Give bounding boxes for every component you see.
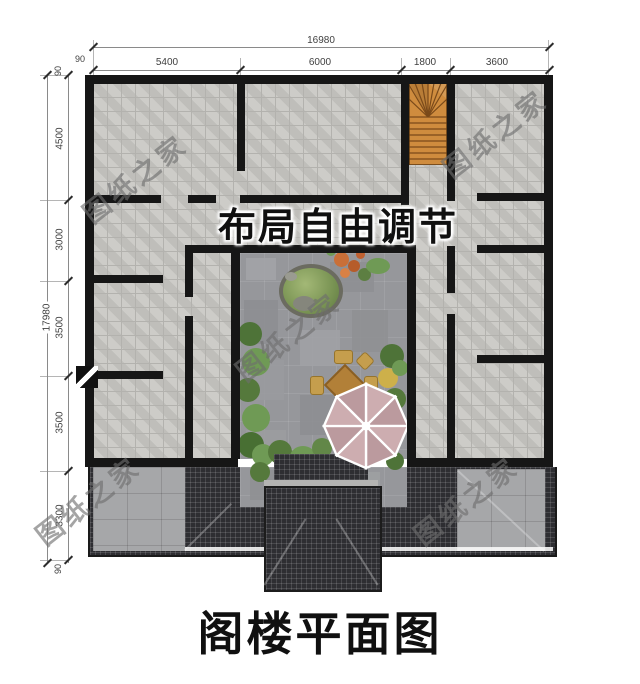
- shrub: [392, 360, 408, 376]
- wall-partition: [188, 195, 216, 203]
- extension-line: [40, 281, 68, 282]
- paving-patch: [246, 258, 276, 280]
- patio-seat: [334, 350, 353, 364]
- wall-partition: [477, 245, 545, 253]
- flower-plant: [334, 252, 349, 267]
- dimension-line-top-segments: [93, 70, 549, 71]
- dim-top-segment: 5400: [142, 57, 192, 68]
- wall-fixture-marker: [76, 366, 98, 388]
- wall-partition: [93, 275, 163, 283]
- dim-left-segment: 3500: [55, 306, 66, 350]
- wall-exterior-left: [85, 75, 94, 467]
- shrub: [366, 258, 390, 274]
- dim-left-segment: 3000: [55, 218, 66, 262]
- wall-partition: [185, 316, 193, 459]
- dim-left-segment: 4500: [55, 117, 66, 161]
- dimension-tick: [545, 42, 554, 51]
- dimension-tick: [64, 555, 73, 564]
- extension-line: [40, 200, 68, 201]
- page-title: 阁楼平面图: [0, 598, 640, 664]
- paving-patch: [352, 310, 388, 352]
- wall-exterior-top: [85, 75, 553, 84]
- wall-stairwell-left: [401, 83, 409, 205]
- rock: [285, 272, 297, 281]
- shrub: [250, 462, 270, 482]
- dim-top-segment: 1800: [400, 57, 450, 68]
- floor-plan-page: 16980 90 5400 6000 1800 3600 17980 90 45…: [0, 0, 640, 684]
- wall-exterior-right: [544, 75, 553, 467]
- dim-left-segment: 3500: [55, 401, 66, 445]
- dim-top-segment: 3600: [472, 57, 522, 68]
- dim-left-segment: 90: [53, 547, 63, 591]
- patio-umbrella-icon: [322, 382, 410, 470]
- porch-roof: [264, 486, 382, 592]
- dim-top-edge: 90: [70, 54, 90, 64]
- wall-partition: [93, 371, 163, 379]
- dim-top-segment: 6000: [295, 57, 345, 68]
- dimension-tick: [545, 65, 554, 74]
- dim-left-segment: 90: [53, 49, 63, 93]
- shrub: [242, 404, 270, 432]
- wall-partition: [477, 193, 545, 201]
- wall-partition: [447, 246, 455, 293]
- flower-plant: [340, 268, 350, 278]
- wall-partition: [237, 83, 245, 171]
- wall-partition: [477, 355, 545, 363]
- plan-annotation: 布局自由调节: [218, 196, 458, 251]
- dimension-line-top-total: [93, 47, 549, 48]
- extension-line: [40, 471, 68, 472]
- dim-top-total: 16980: [296, 35, 346, 46]
- wall-courtyard-right: [407, 245, 416, 459]
- dim-left-total: 17980: [42, 293, 53, 343]
- extension-line: [40, 376, 68, 377]
- wall-partition: [447, 314, 455, 459]
